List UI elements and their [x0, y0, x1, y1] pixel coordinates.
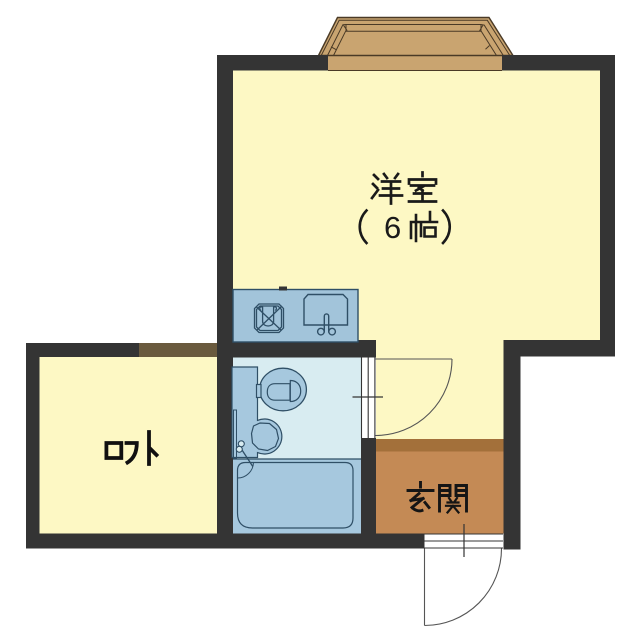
svg-text:6: 6: [384, 210, 401, 245]
